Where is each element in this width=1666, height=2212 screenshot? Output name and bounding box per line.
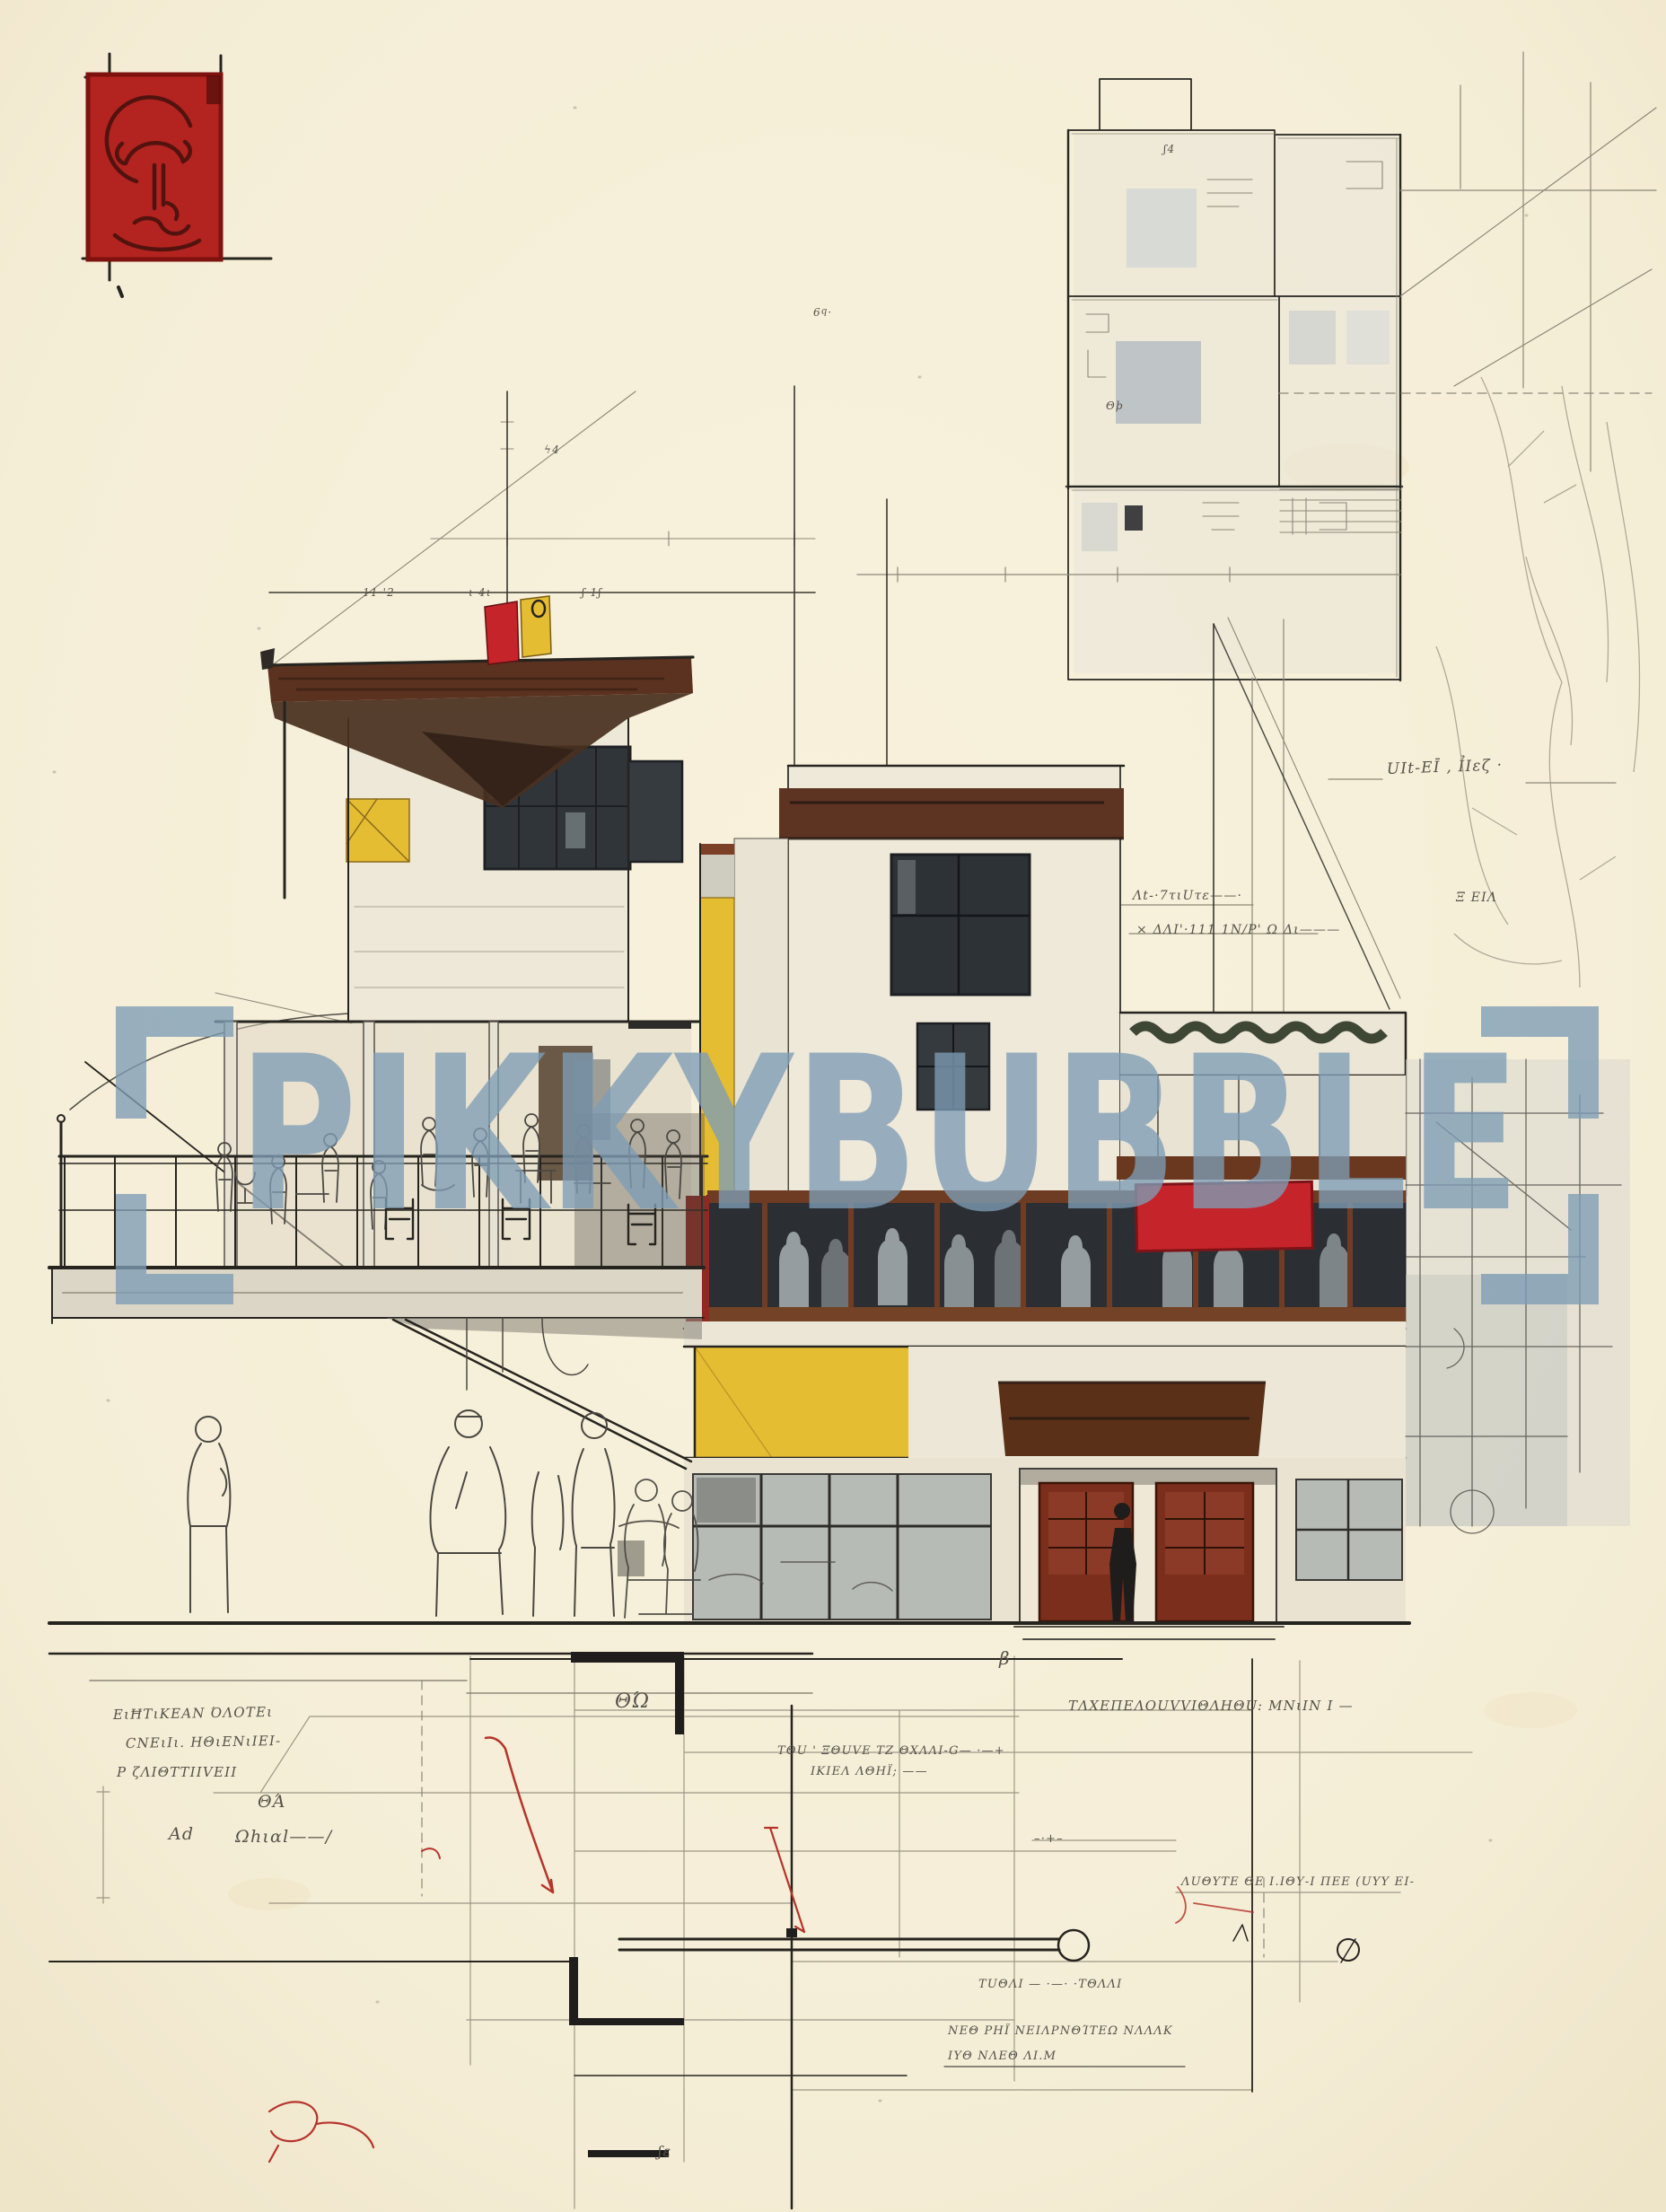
- annotation-note: × ΔΛΙ'·111 1Ν/Ρ' Ω Δι———: [1136, 923, 1340, 937]
- annotation-note: CΝΕιΙι. ΗΘιΕΝιΙΕΙ-: [126, 1733, 282, 1751]
- yellow-facade-panel: [695, 1347, 908, 1458]
- annotation-note: Ξ ΕΙΛ: [1455, 891, 1497, 905]
- center-roof-eave: [779, 788, 1124, 838]
- annotation-note: ΤΛΧΕΠΕΛΟUVVΙΘΛΗΘU: ΜΝιΙΝ Ι —: [1068, 1698, 1354, 1714]
- watermark-text: PIKKYBUBBLE: [238, 1011, 1521, 1260]
- annotation-note: Λt-·7τιUτε——·: [1131, 889, 1242, 903]
- annotation-note: ΙΥΘ ΝΛΕΘ ΛΙ.Μ: [947, 2050, 1057, 2063]
- annotation-note: 11·'2: [363, 586, 395, 599]
- annotation-note: ΤΘU ' ΞΘUVΕ ΤΖ ΘΧΛΛΙ-G— ·—+: [777, 1744, 1005, 1758]
- watermark: PIKKYBUBBLE: [131, 1011, 1583, 1289]
- annotation-note: ΕιĦΤιΚΕΑΝ ΌΛΟΤΕι: [112, 1704, 274, 1723]
- annotation-note: ΙΚΙΕΛ ΛΘΗΪ; ——: [810, 1763, 928, 1778]
- annotation-note: ΝΕΘ ΡΗΪ ΝΕΙΛΡΝΘΊΤΕΩ ΝΛΛΛΚ: [947, 2023, 1173, 2038]
- annotation-note: ΘΆ: [258, 1792, 286, 1812]
- annotation-note: Ωhιαl——/: [234, 1827, 333, 1847]
- annotation-note: ΛUΘΥΤΕ ΘΕ Ι.ΙΘΥ-Ι ΠΕΕ (UΥΥ ΕΙ-: [1180, 1875, 1415, 1889]
- annotation-note: ʃ4: [1161, 143, 1175, 155]
- annotation-note: Ρ ζΛΙΘΤΤΙΙVΕΙΙ: [116, 1764, 237, 1780]
- entry-level: [684, 1321, 1406, 1639]
- artwork-canvas: ΕιĦΤιΚΕΑΝ ΌΛΟΤΕι CΝΕιΙι. ΗΘιΕΝιΙΕΙ- Ρ ζΛ…: [0, 0, 1666, 2212]
- annotation-note: 6ϥ·: [813, 306, 832, 319]
- annotation-note: ΘΏ: [615, 1690, 650, 1713]
- annotation-note: ʃ·1ʃ: [579, 586, 603, 599]
- sketch-page: ΕιĦΤιΚΕΑΝ ΌΛΟΤΕι CΝΕιΙι. ΗΘιΕΝιΙΕΙ- Ρ ζΛ…: [0, 0, 1666, 2212]
- yellow-flag: [521, 596, 551, 657]
- annotation-note: ϟ4: [544, 443, 560, 456]
- annotation-note: Αd: [167, 1824, 194, 1844]
- annotation-note: Θϸ: [1106, 399, 1124, 412]
- annotation-note: β: [998, 1647, 1011, 1669]
- red-flag: [485, 601, 519, 664]
- annotation-note: ι·4ι: [469, 586, 492, 599]
- annotation-note: –·+–: [1034, 1832, 1064, 1846]
- annotation-note: ΤUΘΛΙ — ·—· ·ΤΘΛΛΙ: [978, 1978, 1122, 1991]
- annotation-note: ʃε: [655, 2143, 671, 2160]
